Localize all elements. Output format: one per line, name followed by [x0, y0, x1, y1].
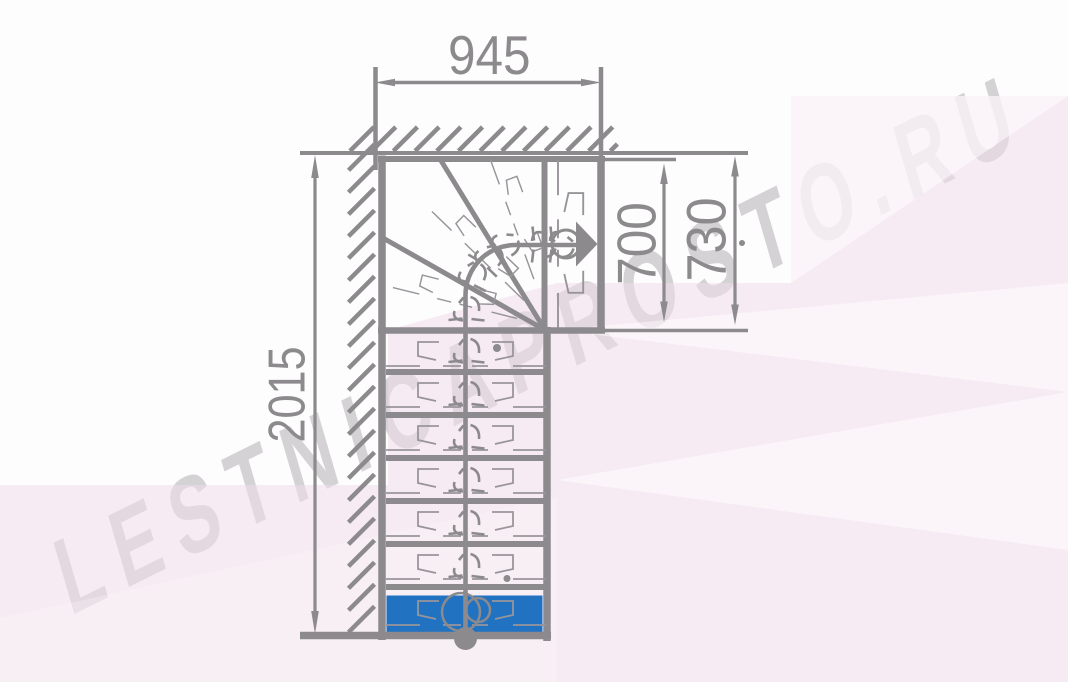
svg-text:945: 945 — [448, 26, 531, 87]
svg-text:700: 700 — [607, 202, 668, 285]
svg-text:2015: 2015 — [259, 347, 317, 443]
svg-text:730: 730 — [676, 197, 738, 281]
